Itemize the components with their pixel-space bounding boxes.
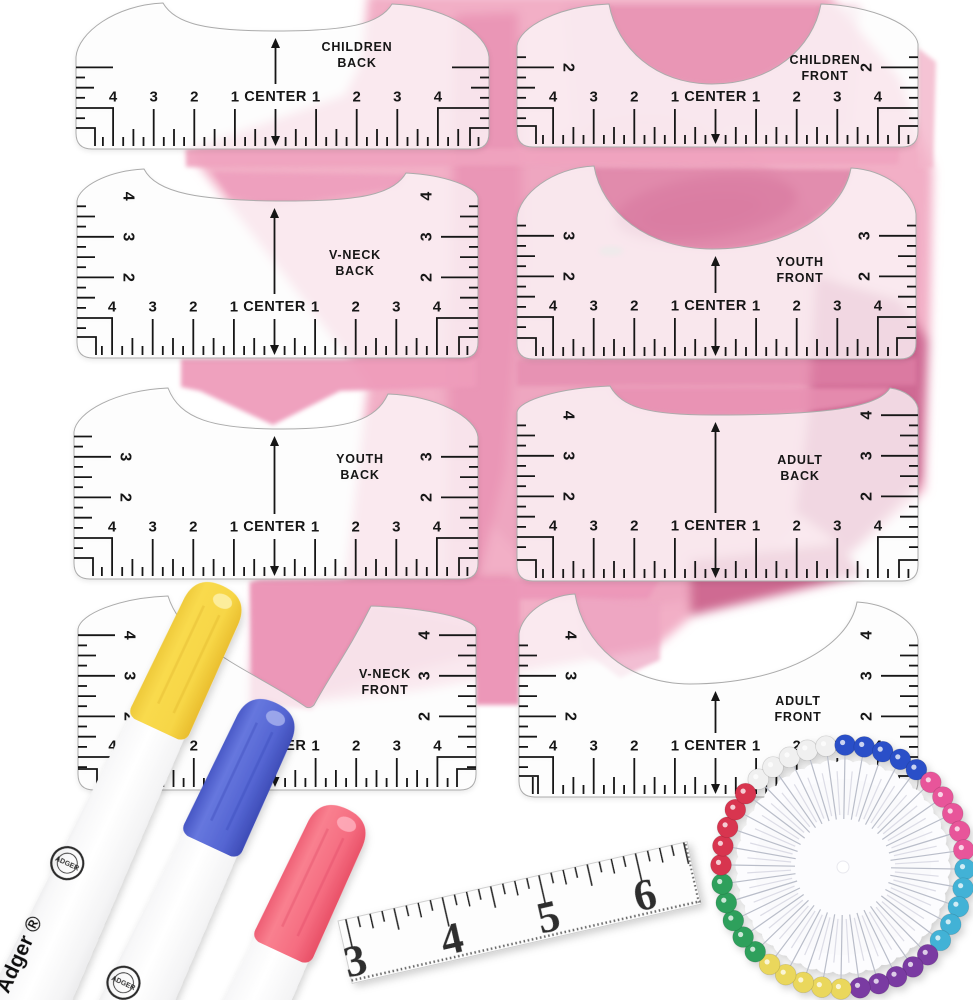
svg-text:V-NECK: V-NECK [359,667,411,681]
svg-text:YOUTH: YOUTH [776,255,824,269]
svg-text:3: 3 [590,518,598,535]
svg-text:1: 1 [671,298,679,315]
svg-text:3: 3 [562,671,579,680]
svg-text:3: 3 [590,738,598,755]
svg-text:CENTER: CENTER [244,89,307,105]
svg-text:4: 4 [434,89,443,106]
svg-text:2: 2 [630,89,638,106]
svg-text:1: 1 [312,89,320,106]
svg-text:4: 4 [549,738,558,755]
svg-text:3: 3 [833,89,841,106]
svg-text:4: 4 [109,89,118,106]
svg-text:3: 3 [419,232,436,241]
svg-text:BACK: BACK [340,468,379,482]
svg-text:2: 2 [560,492,577,501]
svg-text:1: 1 [752,738,760,755]
svg-text:3: 3 [393,738,401,755]
svg-text:3: 3 [833,298,841,315]
svg-text:CENTER: CENTER [243,519,306,535]
svg-text:2: 2 [630,518,638,535]
svg-text:1: 1 [231,89,239,106]
svg-text:ADULT: ADULT [777,453,822,467]
svg-text:4: 4 [549,518,558,535]
svg-text:CHILDREN: CHILDREN [322,40,393,54]
svg-text:ADULT: ADULT [775,694,820,708]
svg-text:2: 2 [793,518,801,535]
svg-text:1: 1 [311,519,319,536]
svg-text:4: 4 [549,298,558,315]
svg-text:4: 4 [859,631,876,640]
svg-text:3: 3 [560,231,577,240]
svg-text:4: 4 [560,411,577,420]
svg-text:2: 2 [419,493,436,502]
svg-text:2: 2 [352,299,360,316]
svg-text:1: 1 [752,89,760,106]
svg-text:3: 3 [393,89,401,106]
svg-text:2: 2 [190,89,198,106]
svg-text:CHILDREN: CHILDREN [790,53,861,67]
svg-text:4: 4 [859,411,876,420]
svg-text:4: 4 [433,738,442,755]
svg-text:1: 1 [671,738,679,755]
svg-text:4: 4 [417,631,434,640]
svg-text:3: 3 [120,232,137,241]
svg-text:2: 2 [419,273,436,282]
svg-text:3: 3 [150,89,158,106]
svg-text:1: 1 [671,518,679,535]
svg-text:3: 3 [117,452,134,461]
svg-text:4: 4 [549,89,558,106]
svg-text:CENTER: CENTER [684,738,747,754]
svg-text:4: 4 [121,631,138,640]
svg-text:3: 3 [149,299,157,316]
svg-text:2: 2 [560,63,577,72]
svg-text:4: 4 [108,299,117,316]
svg-text:2: 2 [793,89,801,106]
svg-text:1: 1 [752,518,760,535]
svg-text:3: 3 [590,298,598,315]
svg-text:4: 4 [419,192,436,201]
svg-text:2: 2 [560,272,577,281]
svg-text:BACK: BACK [780,469,819,483]
svg-text:4: 4 [874,298,883,315]
svg-text:1: 1 [311,738,319,755]
svg-text:3: 3 [590,89,598,106]
svg-text:4: 4 [108,519,117,536]
svg-text:2: 2 [859,712,876,721]
svg-text:FRONT: FRONT [774,710,821,724]
svg-text:FRONT: FRONT [801,69,848,83]
svg-text:1: 1 [230,519,238,536]
svg-text:4: 4 [433,299,442,316]
svg-text:3: 3 [419,452,436,461]
svg-text:CENTER: CENTER [684,89,747,105]
svg-text:3: 3 [833,518,841,535]
svg-text:4: 4 [433,519,442,536]
svg-text:3: 3 [859,671,876,680]
svg-text:2: 2 [353,89,361,106]
svg-text:4: 4 [120,192,137,201]
svg-text:2: 2 [630,738,638,755]
svg-text:2: 2 [190,738,198,755]
svg-text:FRONT: FRONT [776,271,823,285]
svg-text:2: 2 [120,273,137,282]
svg-text:2: 2 [793,298,801,315]
svg-text:3: 3 [121,671,138,680]
svg-text:3: 3 [417,671,434,680]
svg-text:4: 4 [562,631,579,640]
svg-text:CENTER: CENTER [684,298,747,314]
svg-text:2: 2 [562,712,579,721]
svg-text:2: 2 [189,299,197,316]
svg-text:1: 1 [671,89,679,106]
svg-text:2: 2 [417,712,434,721]
svg-text:2: 2 [117,493,134,502]
svg-text:CENTER: CENTER [243,299,306,315]
svg-text:2: 2 [352,519,360,536]
svg-text:3: 3 [392,299,400,316]
svg-text:BACK: BACK [335,264,374,278]
svg-text:2: 2 [352,738,360,755]
svg-text:2: 2 [630,298,638,315]
svg-text:BACK: BACK [337,56,376,70]
svg-text:2: 2 [859,492,876,501]
svg-text:FRONT: FRONT [361,683,408,697]
svg-text:3: 3 [857,231,874,240]
svg-text:2: 2 [857,272,874,281]
svg-text:1: 1 [311,299,319,316]
svg-text:4: 4 [874,518,883,535]
svg-text:1: 1 [752,298,760,315]
svg-text:CENTER: CENTER [684,518,747,534]
svg-text:4: 4 [874,89,883,106]
svg-text:3: 3 [392,519,400,536]
svg-text:YOUTH: YOUTH [336,452,384,466]
svg-text:2: 2 [189,519,197,536]
svg-text:3: 3 [149,519,157,536]
svg-text:3: 3 [859,451,876,460]
svg-text:1: 1 [230,299,238,316]
svg-text:V-NECK: V-NECK [329,248,381,262]
svg-text:2: 2 [859,63,876,72]
svg-text:3: 3 [560,451,577,460]
